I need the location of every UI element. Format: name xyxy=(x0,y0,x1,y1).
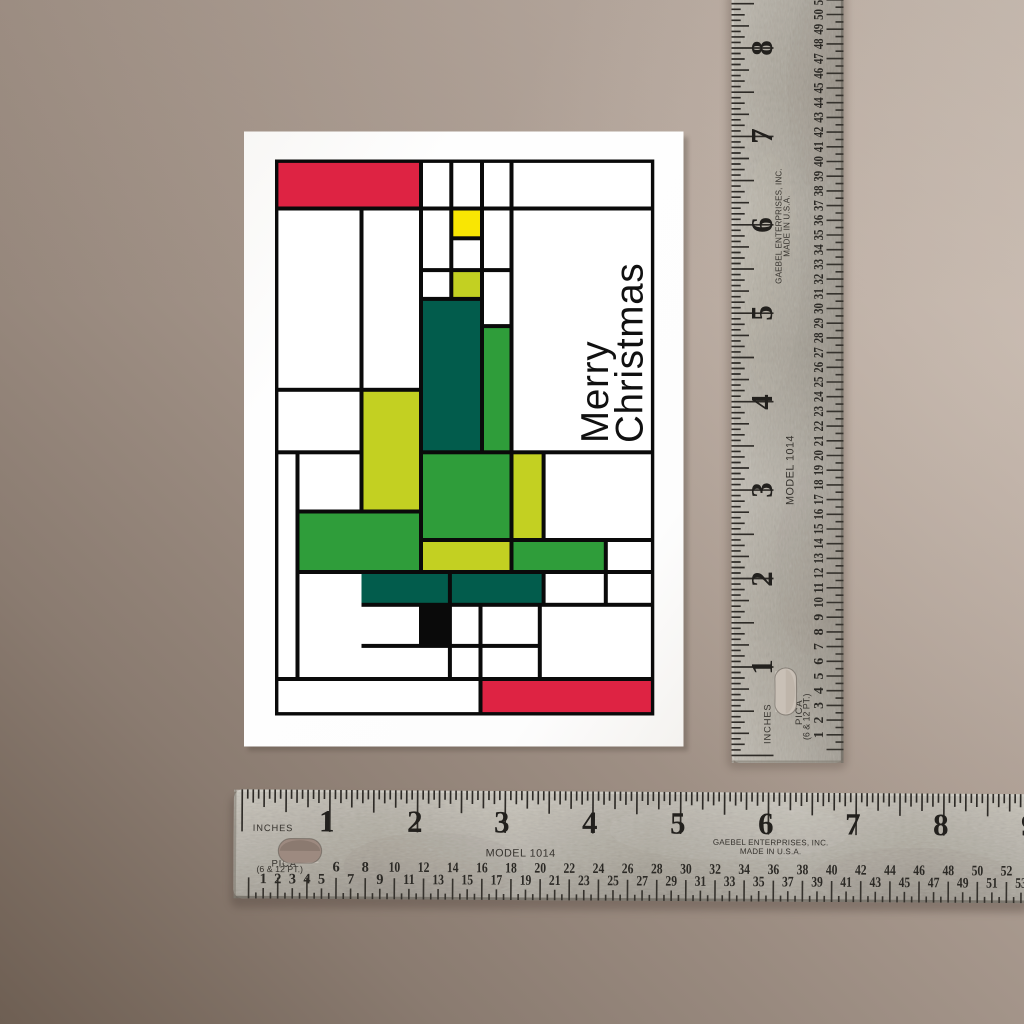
svg-text:20: 20 xyxy=(812,450,827,461)
svg-text:39: 39 xyxy=(811,875,823,891)
svg-text:22: 22 xyxy=(812,421,827,432)
svg-text:33: 33 xyxy=(724,874,736,890)
svg-text:37: 37 xyxy=(812,200,827,211)
svg-text:40: 40 xyxy=(812,156,827,167)
svg-text:14: 14 xyxy=(447,860,459,876)
svg-text:33: 33 xyxy=(812,259,827,270)
svg-text:52: 52 xyxy=(1001,863,1013,879)
svg-text:53: 53 xyxy=(1015,876,1024,892)
svg-text:18: 18 xyxy=(812,480,827,491)
svg-text:21: 21 xyxy=(549,873,561,889)
svg-text:17: 17 xyxy=(812,494,827,505)
svg-text:43: 43 xyxy=(812,112,827,123)
svg-text:24: 24 xyxy=(812,391,827,402)
svg-text:47: 47 xyxy=(928,875,940,891)
svg-text:16: 16 xyxy=(476,860,488,876)
svg-text:4: 4 xyxy=(812,687,827,694)
svg-text:7: 7 xyxy=(845,807,861,842)
svg-text:30: 30 xyxy=(812,303,827,314)
svg-text:13: 13 xyxy=(432,872,444,888)
svg-text:1: 1 xyxy=(319,803,335,838)
svg-text:4: 4 xyxy=(582,805,598,840)
svg-text:48: 48 xyxy=(812,39,827,50)
svg-text:MODEL 1014: MODEL 1014 xyxy=(785,435,797,505)
svg-text:MADE IN U.S.A.: MADE IN U.S.A. xyxy=(783,195,792,256)
svg-text:43: 43 xyxy=(869,875,881,891)
svg-text:44: 44 xyxy=(884,863,896,879)
svg-text:21: 21 xyxy=(812,435,827,446)
svg-text:7: 7 xyxy=(347,872,354,888)
svg-text:24: 24 xyxy=(593,861,605,877)
svg-text:49: 49 xyxy=(812,24,827,35)
svg-text:34: 34 xyxy=(738,862,750,878)
svg-text:27: 27 xyxy=(636,873,648,889)
svg-text:25: 25 xyxy=(812,377,827,388)
svg-text:40: 40 xyxy=(826,862,838,878)
svg-text:3: 3 xyxy=(494,804,510,839)
svg-text:29: 29 xyxy=(812,318,827,329)
svg-text:22: 22 xyxy=(563,861,575,877)
svg-text:15: 15 xyxy=(812,524,827,535)
svg-text:GAEBEL ENTERPRISES, INC.: GAEBEL ENTERPRISES, INC. xyxy=(713,838,829,848)
svg-text:11: 11 xyxy=(403,872,415,888)
svg-text:19: 19 xyxy=(520,873,532,889)
svg-text:2: 2 xyxy=(407,804,423,839)
svg-text:23: 23 xyxy=(578,873,590,889)
svg-text:51: 51 xyxy=(812,0,827,5)
svg-text:MODEL 1014: MODEL 1014 xyxy=(486,847,556,859)
svg-text:48: 48 xyxy=(942,863,954,879)
svg-text:6: 6 xyxy=(812,658,827,665)
svg-text:11: 11 xyxy=(812,582,827,593)
svg-text:6: 6 xyxy=(758,806,774,841)
svg-text:37: 37 xyxy=(782,874,794,890)
svg-text:42: 42 xyxy=(855,863,867,879)
svg-text:1: 1 xyxy=(812,731,827,738)
svg-text:MADE IN U.S.A.: MADE IN U.S.A. xyxy=(740,847,802,856)
svg-text:13: 13 xyxy=(812,553,827,564)
svg-text:41: 41 xyxy=(812,141,827,152)
svg-text:42: 42 xyxy=(812,127,827,138)
svg-text:26: 26 xyxy=(622,861,634,877)
svg-text:36: 36 xyxy=(768,862,780,878)
svg-text:29: 29 xyxy=(665,874,677,890)
svg-text:9: 9 xyxy=(376,872,383,888)
svg-text:4: 4 xyxy=(303,871,310,887)
svg-text:5: 5 xyxy=(812,673,827,680)
svg-text:8: 8 xyxy=(812,628,827,635)
svg-text:5: 5 xyxy=(318,872,325,888)
svg-text:51: 51 xyxy=(986,876,998,892)
svg-text:32: 32 xyxy=(709,862,721,878)
svg-text:7: 7 xyxy=(812,643,827,650)
svg-text:28: 28 xyxy=(812,333,827,344)
svg-text:5: 5 xyxy=(744,305,779,321)
svg-text:(6 & 12 PT.): (6 & 12 PT.) xyxy=(256,864,303,874)
svg-text:(6 & 12 PT.): (6 & 12 PT.) xyxy=(802,693,812,740)
svg-text:46: 46 xyxy=(812,68,827,79)
svg-text:4: 4 xyxy=(744,394,779,410)
svg-text:15: 15 xyxy=(461,872,473,888)
svg-text:INCHES: INCHES xyxy=(763,703,773,744)
svg-text:14: 14 xyxy=(812,538,827,549)
svg-text:38: 38 xyxy=(797,862,809,878)
svg-text:8: 8 xyxy=(744,40,779,56)
svg-text:10: 10 xyxy=(389,860,401,876)
svg-text:18: 18 xyxy=(505,860,517,876)
svg-text:2: 2 xyxy=(812,717,827,724)
svg-text:20: 20 xyxy=(534,861,546,877)
svg-text:9: 9 xyxy=(812,614,827,621)
svg-text:17: 17 xyxy=(491,873,503,889)
svg-text:8: 8 xyxy=(362,860,369,876)
svg-text:19: 19 xyxy=(812,465,827,476)
svg-text:3: 3 xyxy=(744,482,779,498)
svg-text:12: 12 xyxy=(812,568,827,579)
svg-text:7: 7 xyxy=(744,128,779,144)
svg-text:45: 45 xyxy=(812,83,827,94)
svg-text:45: 45 xyxy=(899,875,911,891)
svg-text:50: 50 xyxy=(972,863,984,879)
svg-text:6: 6 xyxy=(332,859,339,875)
svg-text:46: 46 xyxy=(913,863,925,879)
svg-text:32: 32 xyxy=(812,274,827,285)
svg-text:16: 16 xyxy=(812,509,827,520)
svg-text:12: 12 xyxy=(418,860,430,876)
svg-text:1: 1 xyxy=(744,659,779,675)
svg-text:27: 27 xyxy=(812,347,827,358)
svg-text:3: 3 xyxy=(812,702,827,709)
svg-text:10: 10 xyxy=(812,597,827,608)
svg-text:8: 8 xyxy=(933,807,949,842)
svg-text:31: 31 xyxy=(812,288,827,299)
svg-text:44: 44 xyxy=(812,97,827,108)
svg-text:36: 36 xyxy=(812,215,827,226)
svg-text:INCHES: INCHES xyxy=(253,823,294,833)
svg-text:47: 47 xyxy=(812,53,827,64)
svg-text:34: 34 xyxy=(812,244,827,255)
svg-text:25: 25 xyxy=(607,873,619,889)
svg-text:30: 30 xyxy=(680,862,692,878)
svg-text:5: 5 xyxy=(670,805,686,840)
svg-text:31: 31 xyxy=(695,874,707,890)
svg-text:49: 49 xyxy=(957,875,969,891)
svg-text:26: 26 xyxy=(812,362,827,373)
svg-text:38: 38 xyxy=(812,186,827,197)
svg-text:23: 23 xyxy=(812,406,827,417)
svg-text:28: 28 xyxy=(651,861,663,877)
svg-text:41: 41 xyxy=(840,875,852,891)
svg-text:35: 35 xyxy=(753,874,765,890)
svg-text:Christmas: Christmas xyxy=(609,263,652,443)
svg-text:39: 39 xyxy=(812,171,827,182)
svg-text:35: 35 xyxy=(812,230,827,241)
svg-text:2: 2 xyxy=(744,571,779,587)
svg-text:50: 50 xyxy=(812,9,827,20)
